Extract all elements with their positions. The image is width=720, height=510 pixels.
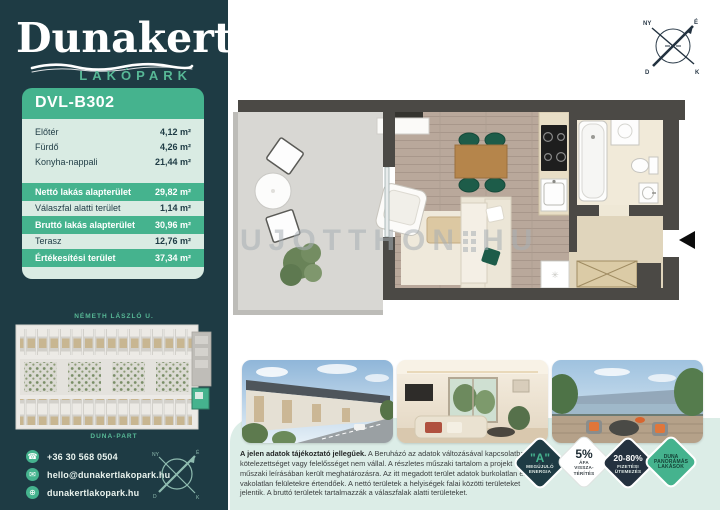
room-value: 4,12 m² (160, 127, 191, 138)
globe-icon: ⊕ (26, 486, 39, 499)
table-row: Fürdő 4,26 m² (22, 140, 204, 155)
brand-subtitle: LAKÓPARK (20, 68, 192, 83)
site-plan (14, 324, 214, 430)
units-row-bottom (20, 399, 192, 425)
bathroom-door-opening (599, 205, 629, 216)
cooktop (541, 125, 567, 171)
dining-table (455, 145, 507, 178)
summary-value: 37,34 m² (155, 253, 191, 264)
mail-icon: ✉ (26, 468, 39, 481)
contact-block: ☎ +36 30 568 0504 ✉ hello@dunakertlakopa… (26, 450, 170, 504)
toilet (632, 157, 659, 174)
table-row: Válaszfal alatti terület 1,14 m² (22, 201, 204, 216)
table-row: Terasz 12,76 m² (22, 234, 204, 249)
summary-label: Bruttó lakás alapterület (35, 220, 135, 231)
compass-icon: É NY D K (150, 446, 204, 500)
room-value: 4,26 m² (160, 142, 191, 153)
courtyard (112, 362, 145, 392)
bathroom-sink (639, 183, 658, 203)
summary-value: 30,96 m² (155, 220, 191, 231)
room-label: Konyha-nappali (35, 157, 98, 168)
summary-label: Válaszfal alatti terület (35, 203, 121, 214)
washing-machine (611, 117, 639, 145)
floor-plan: ✳ (233, 85, 700, 318)
table-row: Konyha-nappali 21,44 m² (22, 155, 204, 170)
svg-text:K: K (196, 495, 200, 500)
terrace-rail (233, 112, 238, 315)
svg-text:NY: NY (643, 21, 651, 27)
coffee-table (427, 217, 465, 243)
disclaimer-text: A jelen adatok tájékoztató jellegűek. A … (240, 449, 534, 498)
entrance-arrow-icon (679, 231, 695, 249)
courtyard (24, 362, 57, 392)
sidebar: Dunakert LAKÓPARK DVL-B302 Előtér 4,12 m… (0, 0, 228, 510)
photo-exterior (242, 360, 393, 443)
compass-icon: É NY D K (641, 12, 705, 78)
contact-email[interactable]: ✉ hello@dunakertlakopark.hu (26, 468, 170, 481)
svg-text:D: D (645, 70, 650, 76)
room-label: Fürdő (35, 142, 59, 153)
svg-text:✳: ✳ (551, 270, 559, 280)
table-row: Előtér 4,12 m² (22, 125, 204, 140)
summary-label: Értékesítési terület (35, 253, 116, 264)
unit-code-badge: DVL-B302 (22, 88, 204, 119)
area-table: Előtér 4,12 m² Fürdő 4,26 m² Konyha-napp… (22, 119, 204, 279)
dining-chair (459, 178, 479, 192)
street-label-bottom: DUNA-PART (0, 433, 228, 440)
pillow (486, 205, 505, 222)
photo-interior (397, 360, 548, 443)
unit-area-card: DVL-B302 Előtér 4,12 m² Fürdő 4,26 m² Ko… (22, 88, 204, 279)
svg-text:É: É (196, 449, 200, 456)
summary-value: 12,76 m² (155, 236, 191, 247)
table-row-highlight: Bruttó lakás alapterület 30,96 m² (22, 216, 204, 234)
wardrobe (577, 261, 637, 287)
photo-terrace-view (552, 360, 703, 443)
terrace-rail (233, 310, 383, 315)
units-row-top (20, 329, 192, 355)
flyer-page: Dunakert LAKÓPARK DVL-B302 Előtér 4,12 m… (0, 0, 720, 510)
summary-value: 1,14 m² (160, 203, 191, 214)
svg-text:D: D (153, 494, 157, 500)
dining-chair (485, 178, 505, 192)
svg-text:K: K (695, 70, 700, 76)
sliding-door (385, 167, 389, 237)
brand-logo: Dunakert (16, 14, 208, 62)
table-row-highlight: Nettó lakás alapterület 29,82 m² (22, 183, 204, 201)
svg-text:NY: NY (152, 452, 160, 458)
room-label: Előtér (35, 127, 59, 138)
contact-website[interactable]: ⊕ dunakertlakopark.hu (26, 486, 170, 499)
summary-label: Nettó lakás alapterület (35, 187, 131, 198)
courtyard (156, 362, 189, 392)
contact-phone[interactable]: ☎ +36 30 568 0504 (26, 450, 170, 463)
summary-label: Terasz (35, 236, 62, 247)
utility-box: ✳ (541, 261, 569, 288)
room-value: 21,44 m² (155, 157, 191, 168)
summary-value: 29,82 m² (155, 187, 191, 198)
courtyard (68, 362, 101, 392)
street-label-top: NÉMETH LÁSZLÓ U. (0, 313, 228, 320)
table-row-highlight: Értékesítési terület 37,34 m² (22, 249, 204, 267)
bathtub (579, 121, 607, 201)
svg-text:É: É (694, 18, 698, 26)
phone-icon: ☎ (26, 450, 39, 463)
sofa (461, 197, 511, 288)
